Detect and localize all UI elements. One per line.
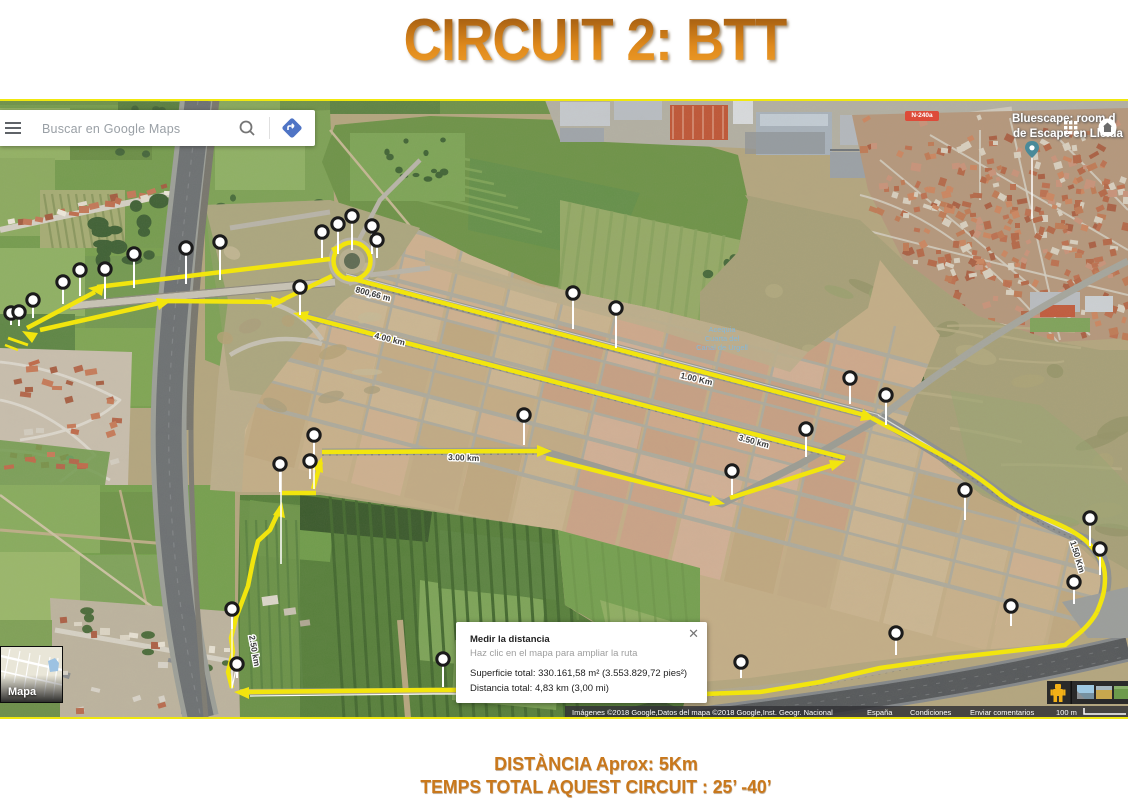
svg-text:Canal de Urgell: Canal de Urgell — [696, 343, 748, 352]
svg-text:Cuarta del: Cuarta del — [705, 334, 740, 343]
svg-text:Acequia: Acequia — [708, 325, 736, 334]
svg-text:3.00 km: 3.00 km — [448, 452, 480, 463]
